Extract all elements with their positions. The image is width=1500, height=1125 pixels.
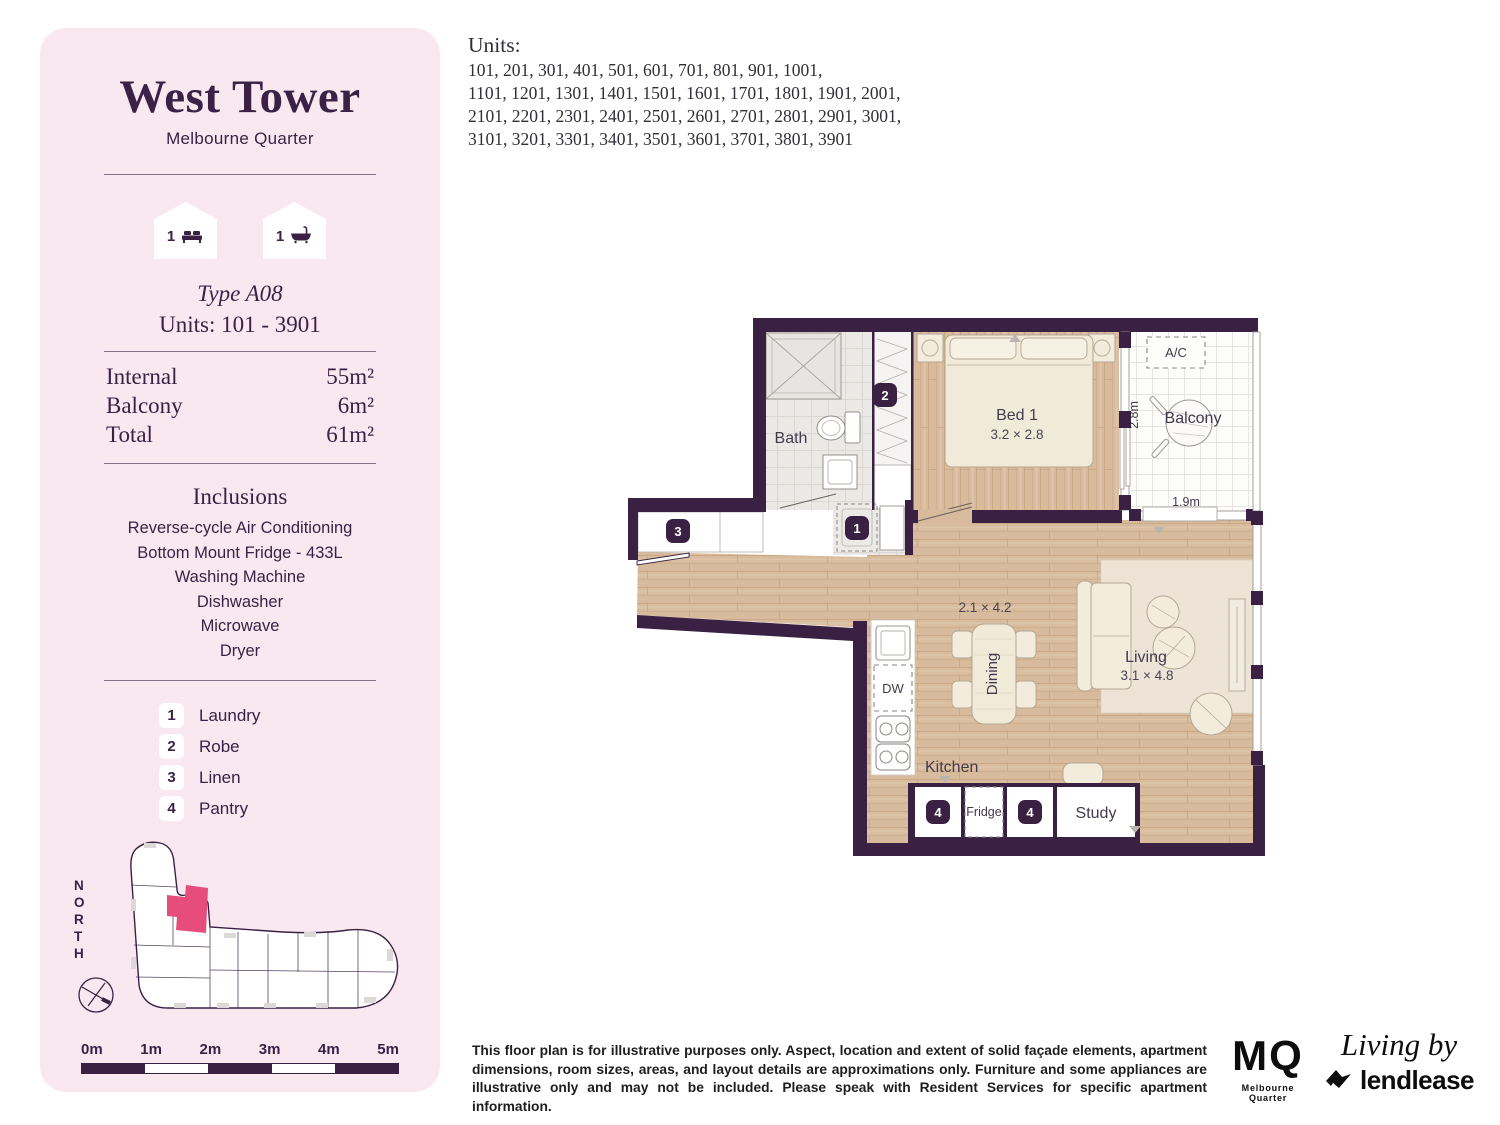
kitchen-label: Kitchen [925, 759, 978, 776]
balcony-step [1143, 507, 1217, 521]
building-key-plan: NORTH [72, 837, 408, 1027]
dining-chair [1015, 681, 1036, 708]
legend-label: Laundry [199, 706, 260, 726]
cooktop [876, 744, 910, 770]
dining-chair [952, 631, 973, 658]
area-label: Balcony [106, 391, 183, 420]
building-outline [131, 842, 398, 1008]
plan-type: Type A08 [40, 281, 440, 307]
svg-text:1: 1 [853, 521, 860, 536]
floor-plan: A/C 2.8m Balcony 1.9m Bath Bed 1 [625, 315, 1290, 860]
units-line: 3101, 3201, 3301, 3401, 3501, 3601, 3701… [468, 128, 901, 151]
window-wall-bedroom [1119, 332, 1131, 510]
sliding-door [1126, 424, 1130, 486]
compass-icon [79, 978, 113, 1012]
svg-text:4: 4 [934, 805, 942, 820]
laundry-tub [880, 506, 904, 550]
mq-logo-letters: MQ [1222, 1034, 1314, 1078]
wall-laundry-right [905, 500, 913, 555]
area-row-total: Total 61m² [106, 420, 374, 449]
linen-closet [638, 512, 763, 552]
svg-text:3: 3 [674, 524, 681, 539]
bath-label: Bath [775, 430, 808, 447]
inclusion-item: Bottom Mount Fridge - 433L [40, 541, 440, 566]
dining-dim-label: 2.1 × 4.2 [959, 600, 1012, 615]
legend-label: Pantry [199, 799, 248, 819]
inclusion-item: Dishwasher [40, 590, 440, 615]
tower-title: West Tower [40, 28, 440, 122]
legend-label: Robe [199, 737, 240, 757]
wall-robe-bed [911, 332, 914, 510]
fridge-label: Fridge [966, 805, 1001, 819]
legend-chip: 3 [159, 765, 184, 790]
units-range: Units: 101 - 3901 [40, 312, 440, 338]
area-value: 6m² [338, 391, 374, 420]
bed-count: 1 [167, 228, 175, 245]
area-table: Internal 55m² Balcony 6m² Total 61m² [106, 362, 374, 449]
badge-row: 1 1 [40, 202, 440, 259]
divider [104, 680, 376, 681]
dining-label: Dining [984, 653, 1001, 696]
bed-dim-label: 3.2 × 2.8 [991, 427, 1044, 442]
bed-label: Bed 1 [996, 407, 1038, 424]
legend-label: Linen [199, 768, 241, 788]
divider [104, 463, 376, 464]
legend-chip: 1 [159, 703, 184, 728]
inclusion-item: Reverse-cycle Air Conditioning [40, 516, 440, 541]
wall-main-left [853, 621, 867, 856]
area-label: Internal [106, 362, 178, 391]
units-line: 2101, 2201, 2301, 2401, 2501, 2601, 2701… [468, 105, 901, 128]
living-group: Living 3.1 × 4.8 [1077, 560, 1253, 735]
area-row-internal: Internal 55m² [106, 362, 374, 391]
disclaimer-text: This floor plan is for illustrative purp… [472, 1042, 1207, 1116]
legend-row-robe: 2 Robe [159, 734, 321, 759]
study-chair [1063, 763, 1103, 785]
units-heading: Units: [468, 32, 901, 59]
marker-pantry-b: 4 [1018, 800, 1042, 824]
living-label: Living [1125, 649, 1167, 666]
wall-top [753, 318, 1258, 332]
wall-right-bottom [1253, 765, 1265, 856]
sliding-door [1120, 427, 1124, 489]
legend-row-linen: 3 Linen [159, 765, 321, 790]
divider [104, 174, 376, 175]
dining-chair [1015, 631, 1036, 658]
lendlease-text: lendlease [1360, 1065, 1474, 1096]
inclusions-list: Reverse-cycle Air Conditioning Bottom Mo… [40, 516, 440, 663]
scale-tick: 0m [81, 1041, 103, 1058]
marker-legend: 1 Laundry 2 Robe 3 Linen 4 Pantry [159, 703, 321, 821]
mq-logo-subtitle: Melbourne Quarter [1222, 1083, 1314, 1103]
marker-linen: 3 [666, 519, 690, 543]
legend-chip: 4 [159, 796, 184, 821]
marker-pantry-a: 4 [926, 800, 950, 824]
scale-tick: 2m [200, 1041, 222, 1058]
ac-label: A/C [1165, 345, 1187, 360]
lendlease-icon [1324, 1066, 1354, 1095]
svg-text:4: 4 [1026, 805, 1034, 820]
scale-bar: 0m 1m 2m 3m 4m 5m [81, 1041, 399, 1074]
study-label: Study [1076, 805, 1117, 822]
wall-bath-robe [872, 332, 875, 510]
bedside-table [917, 334, 943, 362]
legend-chip: 2 [159, 734, 184, 759]
units-list: Units: 101, 201, 301, 401, 501, 601, 701… [468, 32, 901, 151]
balcony-label: Balcony [1165, 410, 1222, 427]
inclusion-item: Microwave [40, 614, 440, 639]
bed-icon [180, 225, 204, 249]
tower-subtitle: Melbourne Quarter [40, 129, 440, 149]
marker-robe: 2 [873, 383, 897, 407]
units-line: 1101, 1201, 1301, 1401, 1501, 1601, 1701… [468, 82, 901, 105]
scale-tick: 4m [318, 1041, 340, 1058]
bath-count: 1 [276, 228, 284, 245]
cooktop [876, 716, 910, 742]
wall-bath-left [753, 318, 766, 512]
info-panel: West Tower Melbourne Quarter 1 1 [40, 28, 440, 1092]
marker-laundry: 1 [845, 516, 869, 540]
north-label: NORTH [74, 877, 88, 962]
living-window-right [1253, 511, 1261, 765]
legend-row-pantry: 4 Pantry [159, 796, 321, 821]
area-row-balcony: Balcony 6m² [106, 391, 374, 420]
inclusion-item: Dryer [40, 639, 440, 664]
area-label: Total [106, 420, 153, 449]
scale-labels: 0m 1m 2m 3m 4m 5m [81, 1041, 399, 1058]
wall-entry-left [628, 498, 638, 560]
mq-logo: MQ Melbourne Quarter [1222, 1034, 1314, 1103]
dining-chair [952, 681, 973, 708]
scale-tick: 3m [259, 1041, 281, 1058]
inclusion-item: Washing Machine [40, 565, 440, 590]
legend-row-laundry: 1 Laundry [159, 703, 321, 728]
inclusions-title: Inclusions [40, 484, 440, 510]
wall-entry-top [628, 498, 765, 512]
key-plan-drawing [72, 837, 408, 1027]
hallway-floor [637, 552, 867, 628]
wall-bottom [853, 843, 1265, 856]
living-by-text: Living by [1328, 1028, 1470, 1062]
lendlease-logo: Living by lendlease [1328, 1028, 1470, 1096]
area-value: 55m² [326, 362, 374, 391]
balcony-rail-right [1253, 332, 1260, 511]
svg-text:2: 2 [881, 388, 888, 403]
units-line: 101, 201, 301, 401, 501, 601, 701, 801, … [468, 59, 901, 82]
scale-tick: 5m [377, 1041, 399, 1058]
toilet-bowl [817, 416, 845, 440]
scale-track [81, 1063, 399, 1074]
pillow [950, 338, 1016, 359]
living-dim-label: 3.1 × 4.8 [1121, 668, 1174, 683]
pillow [1021, 338, 1087, 359]
area-value: 61m² [326, 420, 374, 449]
toilet-tank [845, 412, 860, 443]
bed-count-badge: 1 [154, 202, 217, 259]
bath-count-badge: 1 [263, 202, 326, 259]
dishwasher-label: DW [882, 681, 904, 696]
divider [104, 351, 376, 352]
scale-tick: 1m [140, 1041, 162, 1058]
bath-icon [289, 225, 313, 249]
